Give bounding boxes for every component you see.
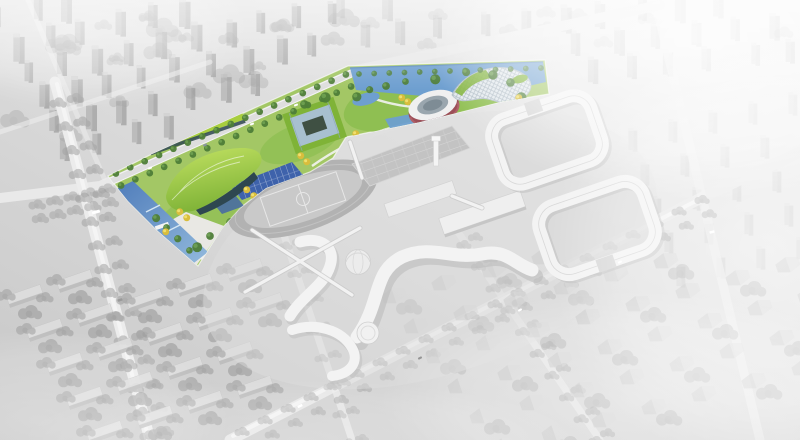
green-tree: [285, 96, 292, 103]
residential-tower: [132, 119, 141, 144]
green-tree: [290, 108, 297, 115]
green-tree: [256, 108, 263, 115]
yellow-tree: [297, 152, 304, 159]
green-tree: [141, 158, 148, 165]
yellow-tree: [162, 228, 169, 235]
green-tree: [184, 139, 191, 146]
green-tree: [242, 114, 249, 121]
green-tree: [276, 114, 283, 121]
green-tree: [190, 151, 197, 158]
green-tree: [261, 120, 268, 127]
green-tree: [146, 170, 153, 177]
green-tree: [206, 232, 214, 240]
green-tree: [199, 133, 206, 140]
yellow-tree: [183, 214, 190, 221]
green-tree: [300, 100, 309, 109]
green-tree: [233, 133, 240, 140]
yellow-tree: [243, 186, 250, 193]
yellow-tree: [303, 158, 310, 165]
yellow-tree: [404, 98, 411, 105]
green-tree: [218, 139, 225, 146]
green-tree: [271, 102, 278, 109]
green-tree: [174, 235, 181, 242]
green-tree: [192, 242, 202, 252]
green-tree: [299, 90, 306, 97]
green-tree: [186, 247, 193, 254]
aerial-rendering: [0, 0, 800, 440]
cylinder-building: [357, 322, 379, 344]
green-tree: [132, 176, 139, 183]
yellow-tree: [398, 94, 405, 101]
green-tree: [170, 145, 177, 152]
yellow-tree: [176, 208, 183, 215]
green-tree: [228, 121, 235, 128]
green-tree: [352, 92, 361, 101]
green-tree: [156, 152, 163, 159]
green-tree: [161, 164, 168, 171]
green-tree: [333, 89, 340, 96]
masterplan-scene: [0, 0, 800, 440]
green-tree: [320, 92, 330, 102]
green-tree: [152, 214, 160, 222]
dome-hall: [346, 250, 371, 275]
green-tree: [247, 126, 254, 133]
green-tree: [175, 157, 182, 164]
residential-tower: [164, 113, 174, 140]
green-tree: [213, 127, 220, 134]
green-tree: [118, 182, 125, 189]
